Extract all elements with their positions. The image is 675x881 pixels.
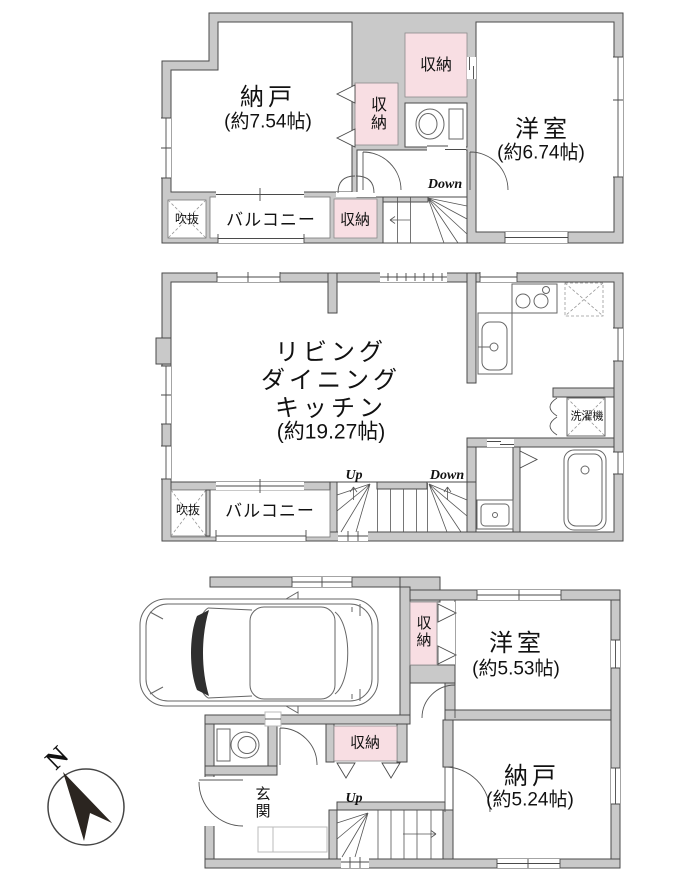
floor1-plan xyxy=(140,577,620,868)
balcony-label-2f: バルコニー xyxy=(225,503,315,520)
toilet-icon-1f xyxy=(217,729,259,761)
room-label-western-1f: 洋室 xyxy=(489,632,545,656)
ldk-label-kitchen: キッチン xyxy=(275,397,387,421)
toilet-icon-3f xyxy=(416,109,463,139)
ldk-label-living: リビング xyxy=(275,341,387,365)
closet-label-center-1f: 収納 xyxy=(350,736,380,751)
floor-plan: 納戸 (約7.54帖) 収納 収納 洋室 (約6.74帖) Down 吹抜 バル… xyxy=(0,0,675,881)
void-label-3f: 吹抜 xyxy=(175,213,199,225)
bathtub-icon xyxy=(564,450,606,530)
room-label-storage-1f: 納戸 xyxy=(504,765,560,789)
room-size-storage-1f: (約5.24帖) xyxy=(486,791,574,810)
ldk-label-dining: ダイニング xyxy=(261,369,401,393)
room-label-western-3f: 洋室 xyxy=(515,118,571,142)
laundry-label: 洗濯機 xyxy=(571,412,604,423)
closet-label-center-3f: 収納 xyxy=(368,96,384,132)
stairs-down-label-3f: Down xyxy=(428,178,462,192)
compass-icon xyxy=(48,769,124,845)
room-size-western-1f: (約5.53帖) xyxy=(472,660,560,679)
void-label-2f: 吹抜 xyxy=(176,504,200,516)
entrance-step xyxy=(258,827,327,852)
floor2-plan xyxy=(156,271,623,541)
stairs-down-label-2f: Down xyxy=(430,469,464,483)
stairs-up-label-2f: Up xyxy=(345,469,362,483)
ldk-size-label: (約19.27帖) xyxy=(277,422,386,443)
closet-label-right-1f: 収納 xyxy=(416,615,431,649)
balcony-label-3f: バルコニー xyxy=(226,212,316,229)
entrance-label: 玄関 xyxy=(255,786,270,820)
room-size-storage-3f: (約7.54帖) xyxy=(224,113,312,132)
sink-icon xyxy=(478,322,507,370)
closet-label-top-3f: 収納 xyxy=(420,58,452,74)
room-size-western-3f: (約6.74帖) xyxy=(497,144,585,163)
stairs-up-label-1f: Up xyxy=(345,792,362,806)
closet-label-bottom-3f: 収納 xyxy=(340,213,370,228)
washbasin-icon xyxy=(477,500,513,529)
room-label-storage-3f: 納戸 xyxy=(240,86,296,110)
